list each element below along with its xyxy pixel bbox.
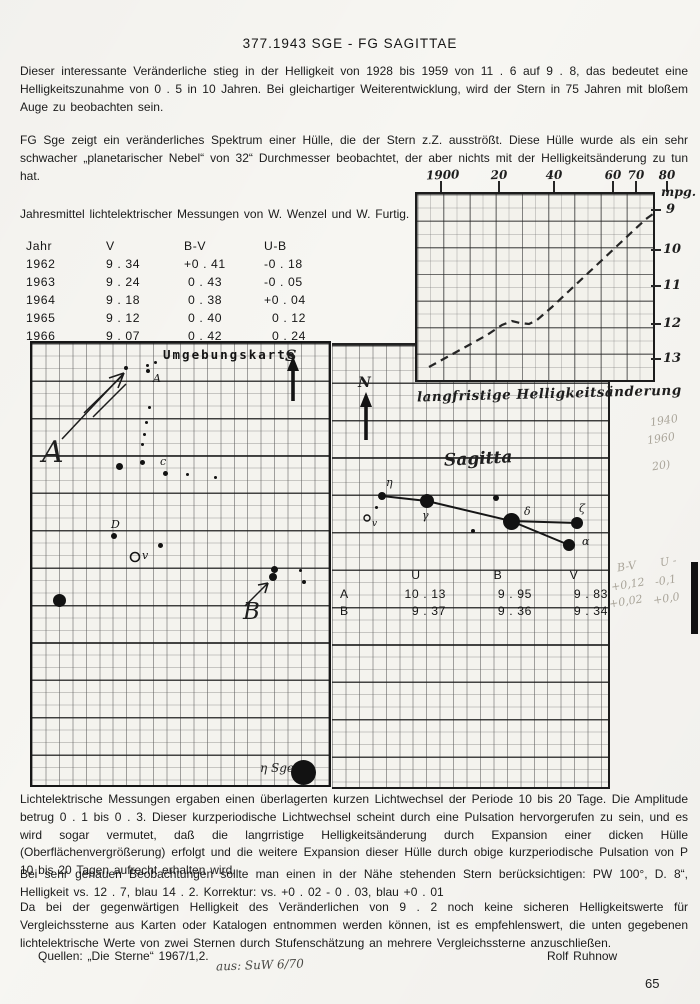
table-header-cell: Jahr bbox=[26, 239, 52, 253]
y-tick-mark bbox=[651, 285, 661, 287]
table-cell: 9 . 95 bbox=[452, 587, 532, 601]
star-dot bbox=[503, 513, 520, 530]
y-tick-mark bbox=[651, 323, 661, 325]
star-dot bbox=[214, 476, 217, 479]
y-tick-label: 9 bbox=[666, 202, 675, 217]
variable-circle-marker bbox=[364, 515, 370, 521]
star-label: D bbox=[111, 518, 120, 531]
star-dot bbox=[53, 594, 66, 607]
table-cell: 0 . 40 bbox=[184, 311, 222, 325]
table-header-cell: U-B bbox=[264, 239, 287, 253]
star-dot bbox=[291, 760, 316, 785]
table-cell: 1962 bbox=[26, 257, 56, 271]
y-tick-label: 12 bbox=[663, 316, 681, 331]
star-dot bbox=[302, 580, 306, 584]
y-tick-mark bbox=[651, 249, 661, 251]
y-unit-label: mpg. bbox=[661, 184, 696, 199]
star-dot bbox=[378, 492, 386, 500]
table-cell: 0 . 43 bbox=[184, 275, 222, 289]
x-tick-mark bbox=[440, 181, 442, 192]
table-header-cell: B bbox=[478, 568, 518, 582]
star-label: α bbox=[582, 535, 589, 548]
star-dot bbox=[143, 433, 146, 436]
star-dot bbox=[420, 494, 434, 508]
star-label: A bbox=[153, 372, 161, 385]
star-dot bbox=[154, 361, 157, 364]
y-tick-mark bbox=[651, 209, 661, 211]
environment-map: Umgebungskarte S A B v bbox=[30, 341, 331, 787]
table-row-label: A bbox=[340, 587, 349, 601]
pencil-note: 1960 bbox=[646, 430, 676, 447]
table-cell: 9 . 18 bbox=[106, 293, 140, 307]
star-dot bbox=[299, 569, 302, 572]
table-cell: 9 . 83 bbox=[528, 587, 608, 601]
table-cell: 10 . 13 bbox=[366, 587, 446, 601]
table-cell: 1963 bbox=[26, 275, 56, 289]
star-dot bbox=[116, 463, 123, 470]
pointer-a-label: A bbox=[42, 435, 64, 470]
star-dot bbox=[375, 506, 378, 509]
map-arrows bbox=[32, 343, 329, 785]
star-dot bbox=[271, 566, 278, 573]
table-cell: 1965 bbox=[26, 311, 56, 325]
table-cell: 9 . 34 bbox=[106, 257, 140, 271]
star-dot bbox=[111, 533, 117, 539]
x-tick-mark bbox=[612, 181, 614, 192]
paragraph-neighbor-star: Bei sehr genauen Beobachtungen sollte ma… bbox=[20, 866, 688, 902]
table-cell: 9 . 37 bbox=[366, 604, 446, 618]
table-header-cell: V bbox=[554, 568, 594, 582]
x-tick-mark bbox=[553, 181, 555, 192]
star-dot bbox=[163, 471, 168, 476]
pencil-note: -0,1 bbox=[654, 572, 677, 588]
table-header-cell: U bbox=[396, 568, 436, 582]
star-dot bbox=[145, 421, 148, 424]
pencil-note: B-V bbox=[616, 559, 637, 575]
star-dot bbox=[158, 543, 163, 548]
star-label: ζ bbox=[579, 502, 585, 515]
scanned-page: 377.1943 SGE - FG SAGITTAE Dieser intere… bbox=[0, 0, 700, 1004]
table-cell: 0 . 12 bbox=[264, 311, 306, 325]
y-tick-label: 10 bbox=[663, 242, 681, 257]
chart-plot-area bbox=[415, 192, 655, 382]
paragraph-measurements-intro: Jahresmittel lichtelektrischer Messungen… bbox=[20, 206, 420, 224]
pointer-arrow-a bbox=[62, 373, 126, 439]
eta-sge-label: η Sge bbox=[260, 761, 294, 775]
star-label: η bbox=[386, 476, 393, 489]
longterm-brightness-chart: 19002040607080 910111213 mpg. langfristi… bbox=[405, 166, 700, 414]
variable-circle-marker bbox=[131, 553, 140, 562]
star-dot bbox=[186, 473, 189, 476]
pointer-b-label: B bbox=[243, 599, 260, 625]
brightness-trend-line bbox=[417, 194, 653, 380]
constellation-title: Sagitta bbox=[444, 447, 513, 471]
pencil-note: U - bbox=[659, 554, 677, 569]
star-dot bbox=[269, 573, 277, 581]
pencil-note: +0,12 bbox=[610, 575, 645, 593]
star-dot bbox=[140, 460, 145, 465]
variable-marker-label: v bbox=[372, 519, 377, 529]
table-header-cell: V bbox=[106, 239, 115, 253]
star-dot bbox=[471, 529, 475, 533]
pencil-note: 1940 bbox=[649, 412, 679, 429]
star-label: δ bbox=[524, 505, 531, 518]
page-number: 65 bbox=[645, 976, 659, 991]
star-dot bbox=[148, 406, 151, 409]
table-cell: -0 . 18 bbox=[264, 257, 303, 271]
table-cell: 9 . 24 bbox=[106, 275, 140, 289]
variable-marker-label: v bbox=[142, 549, 148, 562]
table-cell: 1964 bbox=[26, 293, 56, 307]
scan-edge-artifact bbox=[691, 562, 698, 634]
pencil-note: 20) bbox=[651, 458, 671, 474]
star-label: γ bbox=[422, 509, 429, 522]
author-name: Rolf Ruhnow bbox=[547, 948, 617, 966]
table-cell: 0 . 38 bbox=[184, 293, 222, 307]
star-label: c bbox=[160, 455, 166, 468]
star-dot bbox=[146, 364, 149, 367]
x-tick-mark bbox=[498, 181, 500, 192]
y-tick-mark bbox=[651, 358, 661, 360]
star-dot bbox=[146, 369, 150, 373]
table-row-label: B bbox=[340, 604, 349, 618]
star-dot bbox=[493, 495, 499, 501]
south-arrow bbox=[287, 356, 299, 401]
table-cell: 9 . 34 bbox=[528, 604, 608, 618]
table-cell: +0 . 41 bbox=[184, 257, 226, 271]
table-header-cell: B-V bbox=[184, 239, 206, 253]
y-tick-label: 13 bbox=[663, 351, 681, 366]
table-cell: -0 . 05 bbox=[264, 275, 303, 289]
table-cell: 9 . 36 bbox=[452, 604, 532, 618]
pencil-note: +0,0 bbox=[652, 590, 680, 607]
handwritten-source-note: aus: SuW 6/70 bbox=[216, 956, 304, 973]
pencil-note: +0,02 bbox=[608, 592, 643, 610]
star-dot bbox=[571, 517, 583, 529]
paragraph-brightness-rise: Dieser interessante Veränderliche stieg … bbox=[20, 63, 688, 116]
table-cell: 9 . 12 bbox=[106, 311, 140, 325]
x-tick-mark bbox=[635, 181, 637, 192]
star-dot bbox=[124, 366, 128, 370]
table-cell: +0 . 04 bbox=[264, 293, 306, 307]
page-title: 377.1943 SGE - FG SAGITTAE bbox=[0, 36, 700, 51]
paragraph-comparison-stars: Da bei der gegenwärtigen Helligkeit des … bbox=[20, 899, 688, 952]
sources-line: Quellen: „Die Sterne“ 1967/1,2. bbox=[38, 948, 209, 966]
star-dot bbox=[563, 539, 575, 551]
chart-caption: langfristige Helligkeitsänderung bbox=[417, 383, 682, 406]
star-dot bbox=[141, 443, 144, 446]
y-tick-label: 11 bbox=[663, 278, 681, 293]
